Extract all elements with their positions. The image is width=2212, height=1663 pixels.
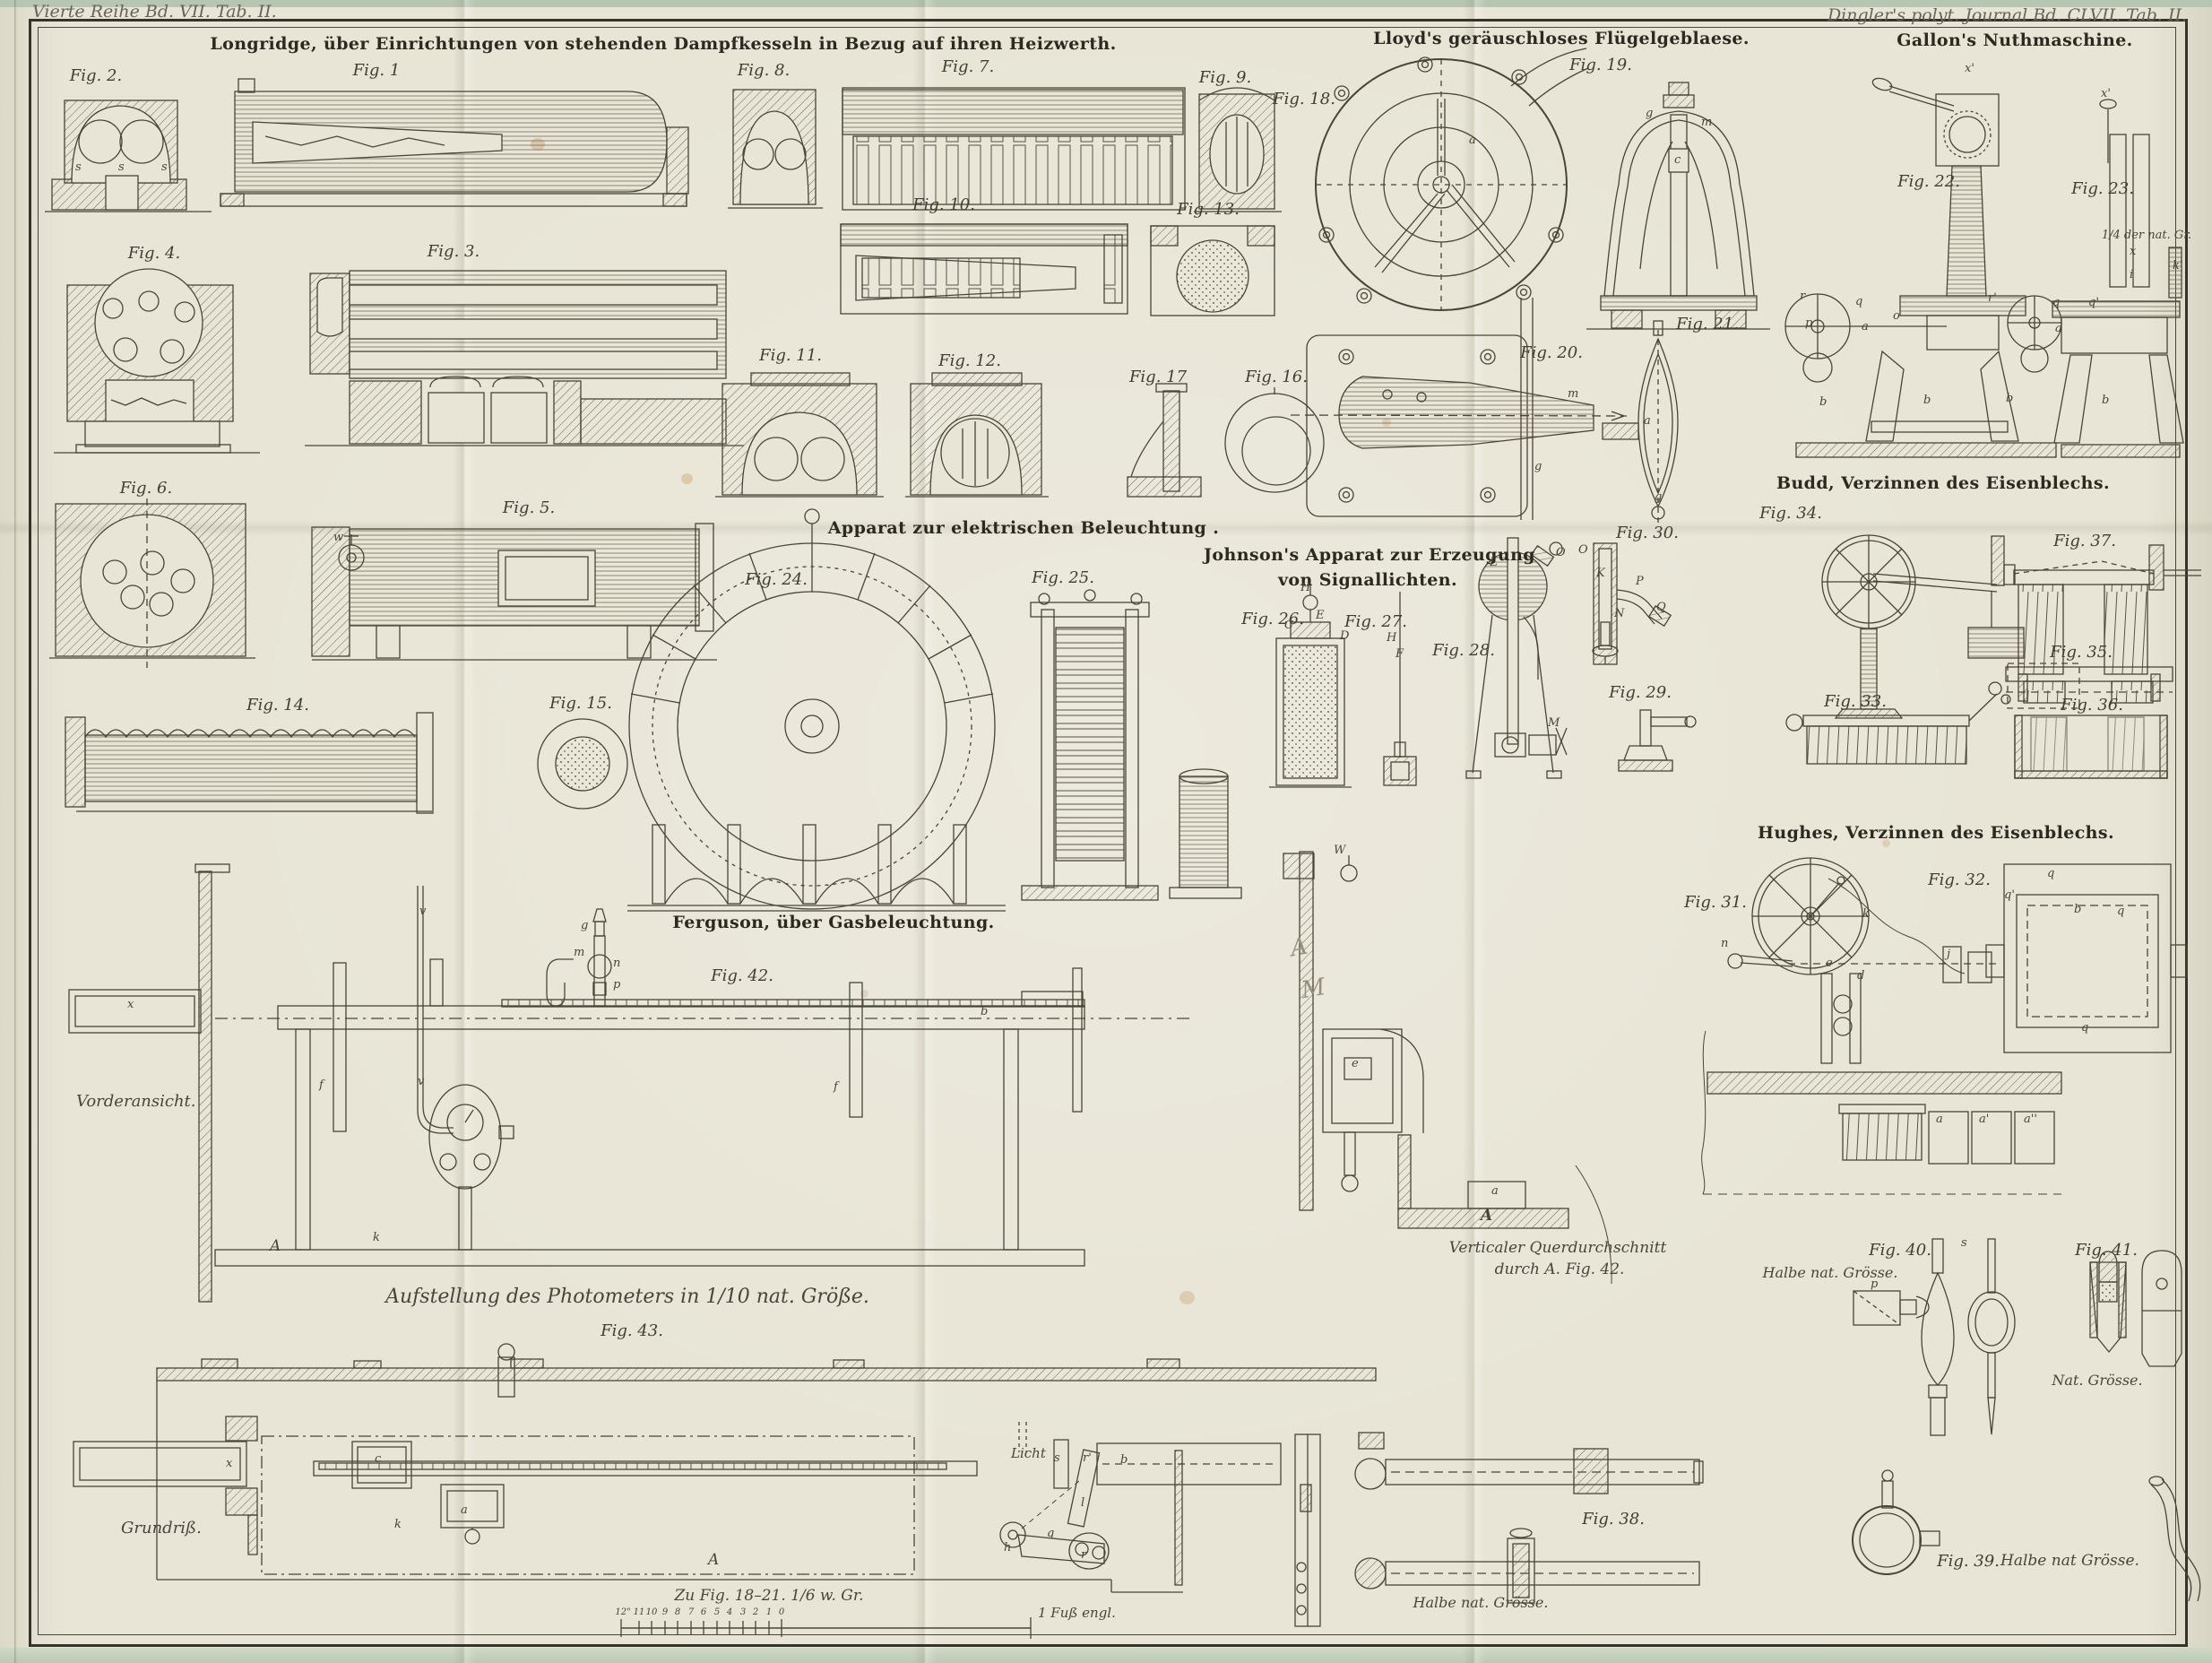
fig-18-drawing xyxy=(1316,48,1588,310)
part-letter: d xyxy=(1857,970,1864,982)
fig-21-label: Fig. 21. xyxy=(1676,315,1739,333)
fig-33-label: Fig. 33. xyxy=(1824,692,1887,711)
part-letter: q xyxy=(2052,297,2060,308)
fig-14-drawing xyxy=(65,713,433,813)
vorderansicht-label: Vorderansicht. xyxy=(76,1092,196,1111)
part-letter: a xyxy=(1491,1185,1499,1197)
fig-16-drawing xyxy=(1225,387,1324,492)
part-letter: K xyxy=(1596,567,1605,579)
part-letter: l xyxy=(1081,1497,1084,1509)
fig-9-label: Fig. 9. xyxy=(1199,68,1251,87)
part-letter: A xyxy=(708,1553,719,1568)
fig-35-label: Fig. 35. xyxy=(2050,643,2113,662)
fig-11-drawing xyxy=(715,373,884,497)
scale-tick-label: 6 xyxy=(701,1607,706,1617)
part-letter: m xyxy=(1568,388,1578,400)
scale-tick-label: 1 xyxy=(766,1607,772,1617)
part-letter: x xyxy=(127,999,134,1010)
title-johnson-line1: Johnson's Apparat zur Erzeugung xyxy=(1204,545,1535,565)
fig-15-label: Fig. 15. xyxy=(549,694,612,713)
fig-34-label: Fig. 34. xyxy=(1759,504,1822,523)
fig-33-drawing xyxy=(1786,682,2010,764)
part-letter: r' xyxy=(1988,292,1997,304)
fig-22-label: Fig. 22. xyxy=(1897,172,1960,191)
fig-9-drawing xyxy=(1194,88,1282,212)
fig-29-drawing xyxy=(1619,710,1696,771)
fig-4-label: Fig. 4. xyxy=(128,244,180,263)
scale-tick-label: 7 xyxy=(688,1607,694,1617)
part-letter: x xyxy=(226,1458,232,1469)
part-letter: a xyxy=(1644,415,1651,427)
part-letter: m xyxy=(574,947,584,958)
fig-43-drawing xyxy=(73,1344,1376,1592)
scale-tick-label: 4 xyxy=(727,1607,732,1617)
fig-8-label: Fig. 8. xyxy=(738,61,790,80)
title-lloyd: Lloyd's geräuschloses Flügelgeblaese. xyxy=(1373,29,1750,48)
title-longridge: Longridge, über Einrichtungen von stehen… xyxy=(210,34,1116,54)
part-letter: s xyxy=(118,161,125,173)
scale-foot-label: 1 Fuß engl. xyxy=(1038,1605,1116,1621)
querschnitt-caption-line2: durch A. Fig. 42. xyxy=(1495,1260,1625,1278)
part-letter: q xyxy=(2117,905,2124,917)
part-letter: s xyxy=(75,161,82,173)
part-letter: P xyxy=(1636,576,1644,587)
fig-20-drawing xyxy=(1291,298,1627,520)
part-letter: b xyxy=(2006,393,2013,404)
fig-39-scale-note: Halbe nat Grösse. xyxy=(2000,1552,2139,1570)
fig-27-label: Fig. 27. xyxy=(1344,612,1407,631)
fig-38-label: Fig. 38. xyxy=(1582,1510,1645,1529)
fig-29-label: Fig. 29. xyxy=(1609,683,1672,702)
scale-tick-label: 0 xyxy=(779,1607,784,1617)
part-letter: A xyxy=(1481,1208,1492,1224)
part-letter: q xyxy=(2081,1022,2088,1034)
part-letter: b xyxy=(2074,904,2081,915)
part-letter: f xyxy=(834,1081,838,1093)
fig-23-label: Fig. 23. xyxy=(2071,179,2134,198)
part-letter: x' xyxy=(2101,88,2111,100)
part-letter: s xyxy=(1961,1237,1967,1249)
part-letter: q' xyxy=(2004,889,2015,901)
fig-8-drawing xyxy=(728,90,823,208)
part-letter: N xyxy=(1614,608,1624,619)
part-letter: b xyxy=(981,1006,988,1018)
part-letter: q xyxy=(1047,1528,1054,1539)
fig-21-drawing xyxy=(1603,321,1678,524)
fig-41-drawing xyxy=(2090,1251,2182,1366)
fig-25-drawing xyxy=(1022,590,1241,900)
fig-17-drawing xyxy=(1128,384,1201,497)
grundriss-label: Grundriß. xyxy=(121,1519,202,1537)
part-letter: n xyxy=(1721,938,1728,949)
fig-41-scale-note: Nat. Grösse. xyxy=(2052,1372,2142,1389)
title-elektrische-beleuchtung: Apparat zur elektrischen Beleuchtung . xyxy=(828,518,1220,538)
title-budd: Budd, Verzinnen des Eisenblechs. xyxy=(1776,473,2110,493)
part-letter: b xyxy=(1923,394,1931,406)
part-letter: p xyxy=(613,979,620,991)
part-letter: r' xyxy=(1083,1452,1092,1464)
fig-2-label: Fig. 2. xyxy=(70,66,122,85)
part-letter: a xyxy=(1936,1113,1943,1125)
fig-42-section-drawing xyxy=(1283,852,1611,1284)
pencil-annotation: M xyxy=(1300,974,1327,1004)
part-letter: w xyxy=(333,532,343,543)
part-letter: g xyxy=(1655,491,1662,503)
part-letter: e xyxy=(1826,957,1833,969)
fig-32-label: Fig. 32. xyxy=(1928,870,1991,889)
fig-30-label: Fig. 30. xyxy=(1616,524,1679,542)
part-letter: e xyxy=(1352,1058,1359,1070)
part-letter: c xyxy=(375,1453,381,1465)
fig-10-drawing xyxy=(841,224,1128,314)
part-letter: n xyxy=(613,957,620,969)
fig-14-label: Fig. 14. xyxy=(246,696,309,715)
fig-25-label: Fig. 25. xyxy=(1032,568,1094,587)
part-letter: a'' xyxy=(2024,1113,2037,1125)
part-letter: i xyxy=(2130,269,2133,281)
title-ferguson: Ferguson, über Gasbeleuchtung. xyxy=(672,913,994,932)
part-letter: p xyxy=(1805,317,1812,329)
part-letter: E xyxy=(1316,610,1325,621)
fig-26-label: Fig. 26. xyxy=(1241,610,1304,628)
part-letter: r xyxy=(1800,290,1805,302)
part-letter: F xyxy=(1395,648,1404,660)
fig-10-label: Fig. 10. xyxy=(912,195,975,214)
part-letter: a xyxy=(461,1504,468,1516)
fig-38-scale-note: Halbe nat. Grösse. xyxy=(1413,1594,1549,1611)
fig-43-label: Fig. 43. xyxy=(601,1321,663,1340)
fig-24-label: Fig. 24. xyxy=(745,570,808,589)
fig-3-label: Fig. 3. xyxy=(428,242,480,261)
part-letter: c xyxy=(1674,154,1681,166)
fig-6-label: Fig. 6. xyxy=(120,479,172,498)
part-letter: s xyxy=(161,161,168,173)
part-letter: v xyxy=(418,1076,424,1087)
part-letter: o xyxy=(1893,310,1900,322)
part-letter: C xyxy=(1284,619,1293,631)
part-letter: b xyxy=(2102,394,2109,406)
fig-19-drawing xyxy=(1586,82,1770,329)
part-letter: x' xyxy=(1965,63,1974,74)
part-letter: s xyxy=(1054,1452,1060,1464)
fig-12-label: Fig. 12. xyxy=(938,351,1001,370)
scale-tick-label: 12" xyxy=(615,1607,630,1617)
scale-caption: Zu Fig. 18–21. 1/6 w. Gr. xyxy=(674,1587,863,1605)
part-letter: q xyxy=(1855,296,1862,307)
title-hughes: Hughes, Verzinnen des Eisenblechs. xyxy=(1758,823,2114,843)
series-note: Vierte Reihe Bd. VII. Tab. II. xyxy=(32,2,277,22)
fig-17-label: Fig. 17 xyxy=(1129,368,1187,386)
part-letter: v xyxy=(419,905,426,917)
fig-12-drawing xyxy=(905,373,1049,497)
part-letter: k xyxy=(373,1232,380,1243)
part-letter: M xyxy=(1548,717,1560,729)
fig-23-drawing xyxy=(2008,100,2183,457)
fig-41-label: Fig. 41. xyxy=(2075,1241,2138,1260)
part-letter: a xyxy=(1862,321,1869,333)
part-letter: O xyxy=(1556,547,1566,559)
fig-42-label: Fig. 42. xyxy=(711,966,773,985)
engraving-plate: Vierte Reihe Bd. VII. Tab. II. Dingler's… xyxy=(0,0,2212,1663)
licht-label: Licht xyxy=(1011,1445,1046,1461)
fig-28-label: Fig. 28. xyxy=(1432,641,1495,660)
fig-31-drawing xyxy=(1702,858,2061,1194)
fig-11-label: Fig. 11. xyxy=(759,346,822,365)
fig-36-label: Fig. 36. xyxy=(2061,696,2123,715)
fig-3-drawing xyxy=(305,271,744,446)
fig-31-label: Fig. 31. xyxy=(1684,893,1747,912)
scale-tick-label: 9 xyxy=(662,1607,668,1617)
fig-37-label: Fig. 37. xyxy=(2053,532,2116,550)
part-letter: H xyxy=(1387,632,1396,644)
fig-6-drawing xyxy=(49,498,255,668)
part-letter: L xyxy=(1490,557,1498,568)
scale-bar xyxy=(621,1617,1031,1639)
part-letter: q' xyxy=(2088,297,2099,308)
part-letter: H xyxy=(1300,582,1310,593)
part-letter: x xyxy=(2130,246,2136,257)
fig-39-label: Fig. 39. xyxy=(1937,1552,2000,1571)
scale-tick-label: 5 xyxy=(714,1607,720,1617)
fig-4-drawing xyxy=(54,269,260,453)
part-letter: g xyxy=(1534,461,1542,472)
title-gallon: Gallon's Nuthmaschine. xyxy=(1897,30,2132,50)
part-letter: b xyxy=(1819,396,1827,408)
fig-23-scale-note: 1/4 der nat. Gr. xyxy=(2102,229,2191,242)
part-letter: a xyxy=(2055,323,2062,334)
fig-7-drawing xyxy=(842,88,1185,210)
part-letter: p xyxy=(1871,1278,1878,1290)
fig-20-label: Fig. 20. xyxy=(1520,343,1583,362)
part-letter: a xyxy=(1469,134,1476,146)
scale-tick-label: 3 xyxy=(740,1607,746,1617)
fig-15-drawing xyxy=(538,719,627,809)
scale-tick-label: 2 xyxy=(753,1607,758,1617)
querschnitt-caption-line1: Verticaler Querdurchschnitt xyxy=(1449,1239,1667,1257)
fig-36-drawing xyxy=(2015,715,2167,778)
part-letter: a' xyxy=(1979,1113,1989,1125)
fig-1-label: Fig. 1 xyxy=(353,61,401,80)
part-letter: O xyxy=(1578,544,1588,556)
fig-16-label: Fig. 16. xyxy=(1245,368,1308,386)
part-letter: D xyxy=(1340,630,1349,642)
fig-40-label: Fig. 40. xyxy=(1869,1241,1931,1260)
part-letter: h xyxy=(1004,1542,1011,1554)
part-letter: Q xyxy=(1656,602,1666,613)
part-letter: W xyxy=(1334,844,1345,856)
part-letter: k' xyxy=(2173,260,2182,272)
fig-1-drawing xyxy=(220,79,688,206)
part-letter: k xyxy=(1862,908,1870,920)
part-letter: j xyxy=(1947,948,1950,960)
fig-18-label: Fig. 18. xyxy=(1273,90,1335,108)
fig-5-label: Fig. 5. xyxy=(503,498,555,517)
fig-7-label: Fig. 7. xyxy=(942,57,994,76)
part-letter: k xyxy=(394,1519,402,1530)
fig-39-drawing xyxy=(1853,1470,2200,1601)
part-letter: g xyxy=(1646,108,1653,119)
fig-13-drawing xyxy=(1151,226,1274,316)
part-letter: f xyxy=(319,1079,324,1091)
fig-2-drawing xyxy=(45,100,212,212)
fig-5-drawing xyxy=(312,524,717,660)
part-letter: b xyxy=(1120,1454,1128,1466)
fig-13-label: Fig. 13. xyxy=(1177,200,1240,219)
scale-tick-label: 10 xyxy=(646,1607,658,1617)
scale-tick-label: 8 xyxy=(675,1607,680,1617)
fig-19-label: Fig. 19. xyxy=(1569,56,1632,74)
part-letter: A xyxy=(270,1239,281,1254)
part-letter: q xyxy=(2047,868,2054,879)
scale-tick-label: 11 xyxy=(634,1607,645,1617)
part-letter: g xyxy=(581,920,588,931)
part-letter: r xyxy=(1081,1549,1086,1561)
title-photometer: Aufstellung des Photometers in 1/10 nat.… xyxy=(385,1286,869,1308)
journal-note: Dingler's polyt. Journal Bd. CLVII. Tab.… xyxy=(1827,5,2187,25)
part-letter: m xyxy=(1701,117,1712,128)
